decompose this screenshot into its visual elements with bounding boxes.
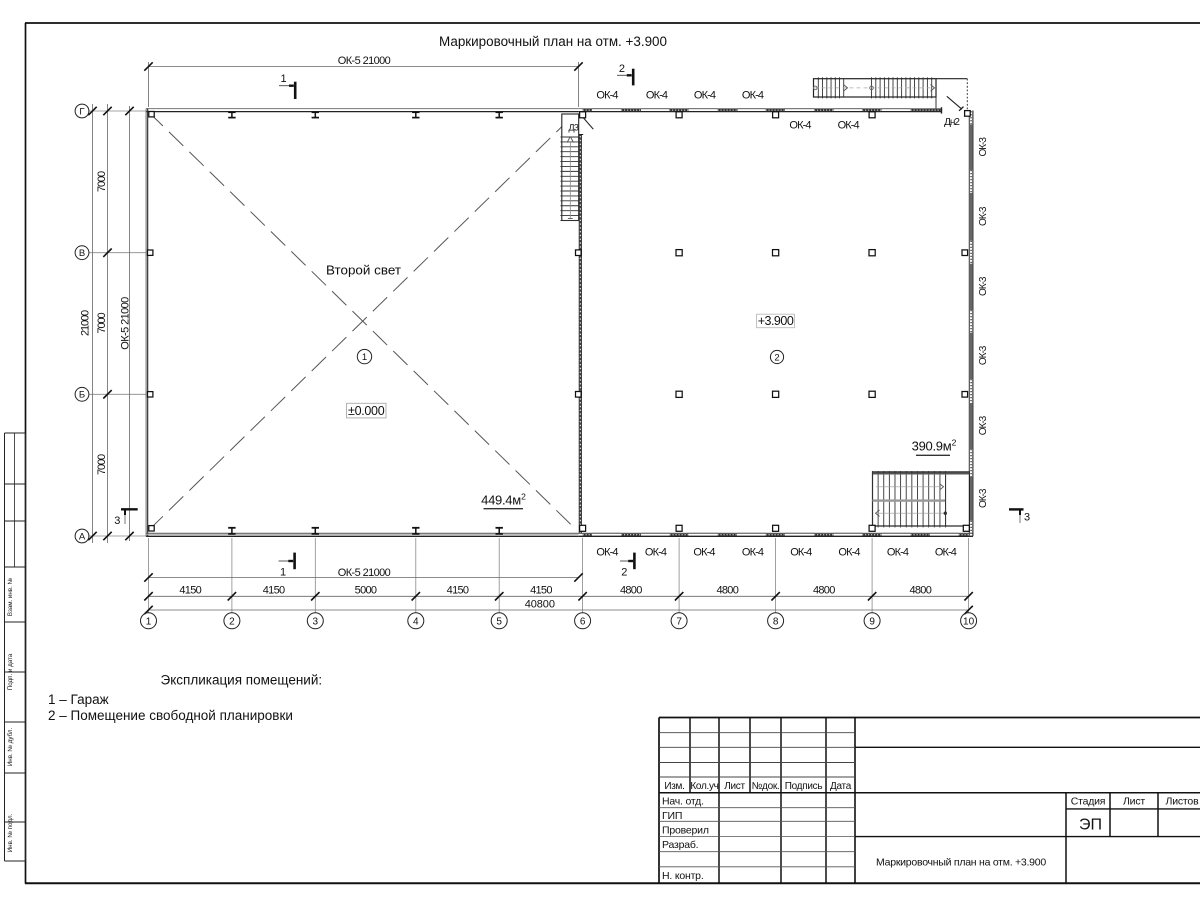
svg-text:5000: 5000 (355, 584, 377, 596)
svg-text:4: 4 (413, 617, 419, 628)
svg-text:ОК-3: ОК-3 (978, 206, 989, 226)
svg-text:Инв. № дубл.: Инв. № дубл. (7, 728, 14, 767)
svg-text:ОК-3: ОК-3 (978, 488, 989, 508)
svg-text:Маркировочный план на отм. +3.: Маркировочный план на отм. +3.900 (876, 856, 1046, 868)
svg-text:ОК-5 21000: ОК-5 21000 (120, 297, 132, 350)
svg-text:Г: Г (79, 106, 84, 117)
svg-text:ОК-4: ОК-4 (742, 89, 764, 101)
svg-text:Б: Б (79, 390, 85, 401)
svg-text:7: 7 (676, 617, 682, 628)
svg-text:Кол.уч: Кол.уч (690, 781, 718, 792)
svg-text:8: 8 (773, 617, 779, 628)
svg-text:Дата: Дата (830, 781, 852, 792)
svg-text:3: 3 (114, 515, 120, 527)
svg-text:6: 6 (580, 617, 586, 628)
svg-text:4150: 4150 (447, 584, 469, 596)
svg-text:ОК-4: ОК-4 (596, 89, 618, 101)
svg-text:10: 10 (963, 617, 975, 628)
svg-text:7000: 7000 (96, 454, 108, 475)
svg-text:4800: 4800 (716, 584, 738, 596)
svg-text:ОК-3: ОК-3 (978, 415, 989, 435)
svg-text:ОК-4: ОК-4 (790, 547, 812, 559)
svg-text:5: 5 (496, 617, 502, 628)
svg-text:4150: 4150 (179, 584, 201, 596)
svg-text:Экспликация помещений:: Экспликация помещений: (161, 672, 323, 687)
svg-text:2: 2 (521, 492, 526, 502)
svg-text:2: 2 (952, 438, 957, 448)
svg-text:Подпись: Подпись (785, 781, 823, 792)
svg-text:4800: 4800 (909, 584, 931, 596)
svg-text:1 – Гараж: 1 – Гараж (48, 692, 109, 707)
svg-text:2 – Помещение свободной планир: 2 – Помещение свободной планировки (48, 708, 293, 723)
svg-text:Дн2: Дн2 (944, 117, 960, 128)
svg-text:ОК-3: ОК-3 (978, 276, 989, 296)
svg-text:4800: 4800 (813, 584, 835, 596)
svg-text:А: А (79, 531, 86, 542)
svg-text:Н. контр.: Н. контр. (662, 870, 704, 882)
svg-text:Разраб.: Разраб. (662, 839, 698, 851)
svg-text:4150: 4150 (263, 584, 285, 596)
svg-text:ОК-5 21000: ОК-5 21000 (338, 55, 391, 67)
svg-text:Подп. и дата: Подп. и дата (7, 653, 14, 690)
svg-text:4800: 4800 (620, 584, 642, 596)
svg-text:ГИП: ГИП (662, 810, 682, 822)
svg-text:ОК-4: ОК-4 (935, 547, 957, 559)
svg-text:±0.000: ±0.000 (348, 404, 385, 418)
svg-text:Изм.: Изм. (664, 781, 684, 792)
svg-text:ОК-3: ОК-3 (978, 137, 989, 157)
svg-text:2: 2 (229, 617, 235, 628)
svg-text:Нач. отд.: Нач. отд. (662, 795, 704, 807)
svg-text:7000: 7000 (96, 171, 108, 192)
svg-text:Лист: Лист (1123, 796, 1145, 808)
svg-text:ОК-4: ОК-4 (645, 547, 667, 559)
svg-text:1: 1 (146, 617, 152, 628)
svg-text:ОК-4: ОК-4 (596, 547, 618, 559)
svg-text:449.4м: 449.4м (481, 492, 521, 507)
svg-text:Проверил: Проверил (662, 824, 709, 836)
svg-text:Стадия: Стадия (1071, 796, 1106, 808)
svg-text:+3.900: +3.900 (758, 314, 794, 328)
svg-text:9: 9 (869, 617, 875, 628)
svg-text:7000: 7000 (96, 312, 108, 333)
svg-text:ОК-4: ОК-4 (887, 547, 909, 559)
svg-text:Взам. инв. №: Взам. инв. № (7, 577, 14, 616)
svg-text:ОК-4: ОК-4 (646, 89, 668, 101)
svg-text:ОК-4: ОК-4 (694, 89, 716, 101)
svg-text:Д3: Д3 (569, 123, 579, 133)
svg-text:21000: 21000 (80, 310, 92, 336)
svg-text:ЭП: ЭП (1079, 816, 1102, 833)
svg-text:ОК-4: ОК-4 (838, 119, 860, 131)
svg-text:Второй свет: Второй свет (326, 264, 401, 278)
svg-text:4150: 4150 (530, 584, 552, 596)
svg-text:ОК-3: ОК-3 (978, 345, 989, 365)
svg-text:2: 2 (621, 567, 627, 579)
svg-text:1: 1 (280, 567, 286, 579)
svg-text:3: 3 (313, 617, 319, 628)
svg-text:Листов: Листов (1166, 796, 1200, 808)
svg-text:390.9м: 390.9м (912, 438, 952, 453)
svg-text:1: 1 (362, 352, 367, 363)
svg-text:ОК-4: ОК-4 (742, 547, 764, 559)
svg-text:3: 3 (1024, 512, 1030, 524)
svg-text:Маркировочный план на отм. +3.: Маркировочный план на отм. +3.900 (439, 34, 667, 50)
svg-text:40800: 40800 (525, 598, 555, 610)
svg-text:2: 2 (774, 353, 779, 364)
svg-text:Лист: Лист (724, 781, 745, 792)
svg-text:Инв. № подл.: Инв. № подл. (7, 813, 14, 852)
svg-text:В: В (79, 248, 85, 259)
svg-text:2: 2 (619, 63, 625, 75)
svg-text:ОК-5 21000: ОК-5 21000 (338, 567, 391, 579)
svg-text:ОК-4: ОК-4 (838, 547, 860, 559)
svg-text:ОК-4: ОК-4 (693, 547, 715, 559)
svg-text:ОК-4: ОК-4 (789, 119, 811, 131)
svg-text:1: 1 (281, 73, 287, 85)
svg-text:№док.: №док. (752, 781, 780, 792)
